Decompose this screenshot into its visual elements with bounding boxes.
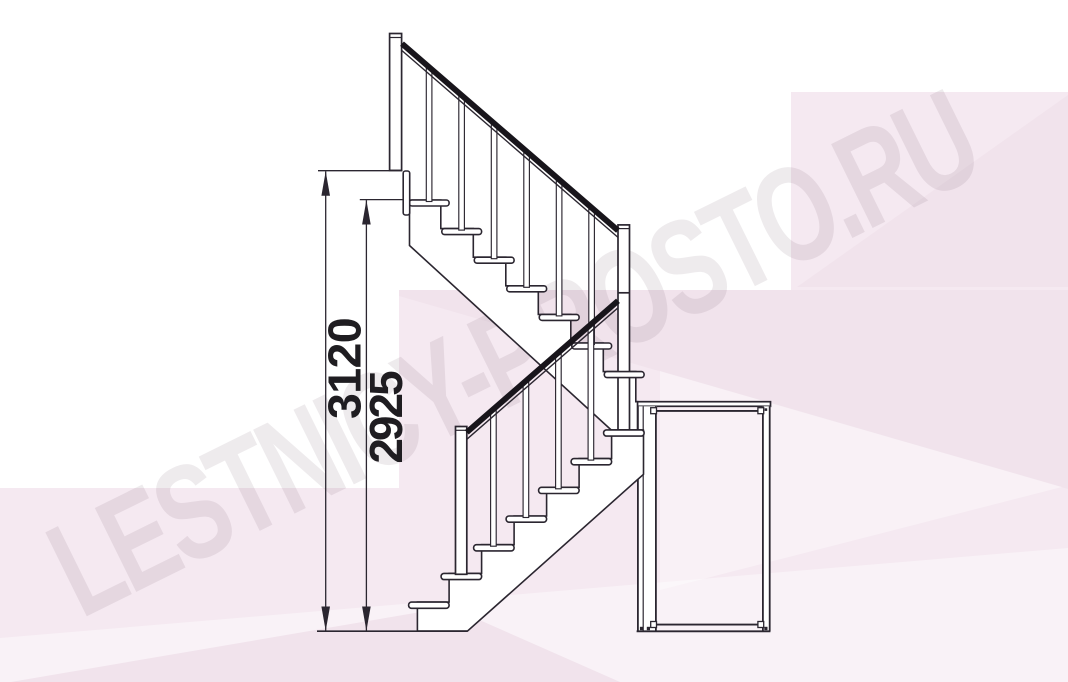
svg-text:2925: 2925 [360, 371, 412, 464]
